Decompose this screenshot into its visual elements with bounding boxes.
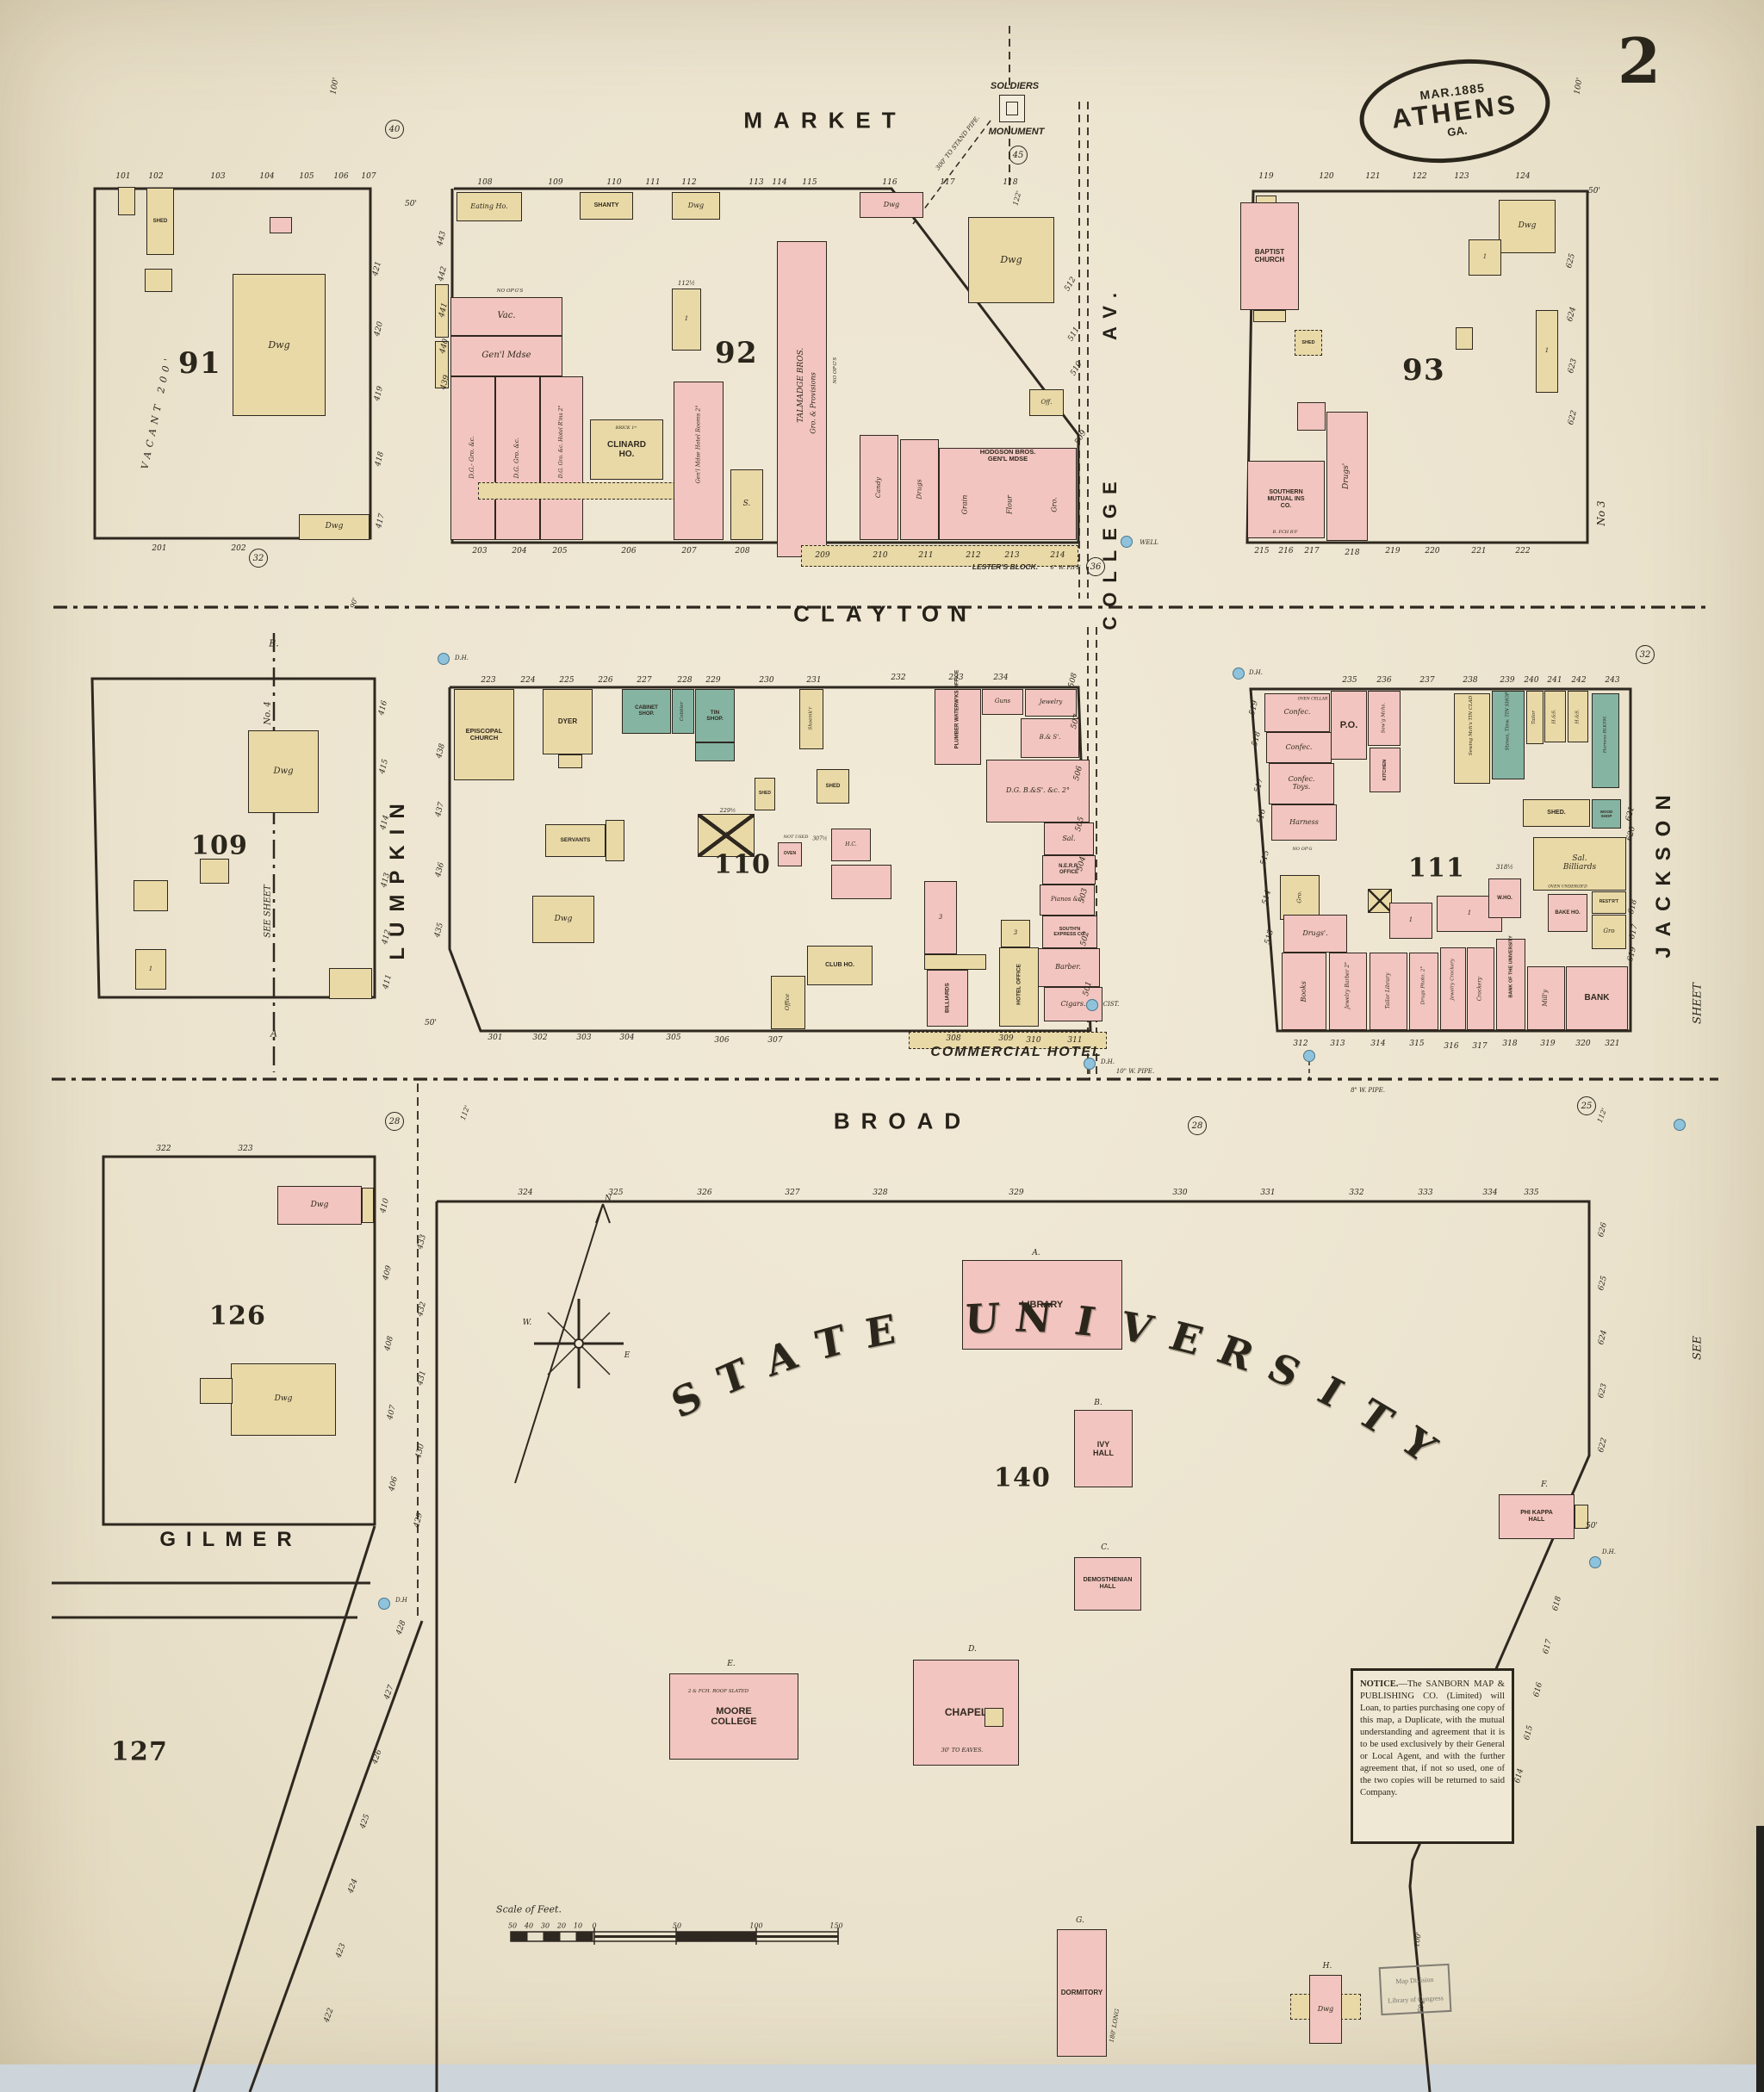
building-label: Guns [995,698,1010,705]
building-label: CABINET SHOP. [635,705,658,717]
map-annotation: H. [1323,1962,1332,1971]
building-label: Dwg [326,523,344,531]
lot-number: 241 [1547,676,1562,685]
lot-number: 217 [1304,547,1319,556]
map-annotation: 150 [829,1922,842,1930]
building-mill-y: Mill'y [1527,966,1565,1030]
lot-number: 209 [815,551,829,560]
building-h-c: H.C. [831,829,871,861]
building-cobbler: Cobbler [672,689,694,734]
building [362,1188,374,1223]
building-candy: Candy [860,435,898,540]
building-label: S. [743,500,751,509]
lot-number: 222 [1515,547,1530,556]
building-label: REST'R'T [1599,900,1618,905]
building-label: Books [1301,981,1308,1002]
map-annotation: B. FCH R'F [1273,530,1298,535]
building-sew-g-mchs: Sew'g Mchs. [1368,691,1401,746]
building-label: Sal. [1062,835,1075,843]
lot-number: 102 [148,172,163,181]
building [924,954,986,970]
lot-number: 219 [1385,547,1400,556]
map-annotation: 50 [673,1922,681,1930]
notice-title: NOTICE. [1360,1679,1398,1689]
building-label: Crockery [1478,977,1483,1001]
building-label: Dwg [555,916,573,924]
circled-number-badge: 28 [385,1112,404,1131]
building-label: DORMITORY [1061,1990,1102,1997]
building-episcopal-church: EPISCOPAL CHURCH [454,689,514,780]
lot-number: 106 [333,172,348,181]
lot-number: 116 [882,178,897,187]
street-label: COLLEGE [1099,472,1121,630]
building-label: Cigars. [1060,1001,1085,1009]
map-annotation: WELL [1140,539,1158,546]
compass-rose-icon [515,1204,624,1483]
building-label: OVEN [784,852,796,857]
map-annotation: 30' TO EAVES. [941,1747,984,1754]
map-annotation: G. [1076,1916,1084,1925]
building-label: EPISCOPAL CHURCH [466,728,503,742]
hydrant-icon [1674,1119,1686,1131]
building-dwg: Dwg [1499,200,1556,253]
lot-number: 221 [1471,547,1486,556]
building-label: 1 [1409,917,1413,924]
building-baptist-church: BAPTIST CHURCH [1240,202,1299,310]
lot-number: 243 [1605,676,1619,685]
building-h-s: H.&S. [1544,691,1566,742]
block-number: 126 [209,1301,266,1332]
map-annotation: SEE [1692,1336,1705,1360]
building-label: D.G. Gro. &c. [514,438,521,478]
building-dwg: Dwg [672,192,720,220]
building [1456,327,1473,350]
building-label: Jewelry Barber 2° [1345,974,1351,1009]
lot-number: 228 [677,676,692,685]
building-label: SHED [759,791,771,797]
building-sal: Sal. [1044,823,1094,855]
lot-number: 211 [918,551,933,560]
building-label: KITCHEN [1382,760,1388,780]
lot-number: 212 [966,551,980,560]
building-label: BILLIARDS [944,984,950,1014]
map-annotation: 10" W. PIPE. [1116,1068,1154,1075]
lot-number: 111 [645,178,660,187]
building-label: BAPTIST CHURCH [1255,249,1285,264]
building-label: SOUTHERN MUTUAL INS CO. [1267,489,1304,509]
building-club-ho: CLUB HO. [807,946,873,985]
hydrant-icon [1589,1556,1601,1568]
block-number: 127 [111,1737,168,1767]
building-label: Stoves, Tinw. TIN SHOP [1506,720,1511,750]
building-label: Drugs'. [1302,930,1327,938]
lot-number: 201 [152,544,166,553]
building-label: Drugs [916,480,922,500]
building-label: SHED [826,784,841,790]
building-label: SHED. [1547,810,1565,816]
building-label: Jewelry Crockery [1450,978,1456,1001]
building-sal-billiards: Sal. Billiards [1533,837,1626,891]
map-annotation: 2 & FCH. ROOF SLATED [688,1689,748,1694]
building-label: SERVANTS [561,837,591,843]
building [1253,310,1286,322]
building-label: Dwg [1519,222,1537,231]
lot-number: 321 [1605,1040,1619,1048]
building-dwg: Dwg [277,1186,362,1225]
map-annotation: 100 [749,1922,762,1930]
building-label: IVY HALL [1093,1440,1114,1457]
building-label: Dwg [1318,2006,1333,2014]
building-bank-of-the-university: BANK OF THE UNIVERSITY [1496,939,1525,1030]
building-dwg: Dwg [231,1363,336,1436]
building-label: BANK OF THE UNIVERSITY [1508,972,1513,998]
notice-body: The SANBORN MAP & PUBLISHING CO. (Limite… [1360,1679,1505,1797]
lot-number: 225 [559,676,574,685]
circled-number-badge: 32 [249,549,268,568]
hydrant-icon [1121,536,1133,548]
stamp-line2: Library of Congress [1388,1994,1444,2004]
lot-number: 316 [1444,1042,1458,1051]
building-label: H.&S. [1575,710,1581,724]
building-crockery: Crockery [1467,947,1494,1030]
lot-number: 329 [1009,1189,1023,1197]
building-p-o: P.O. [1331,691,1367,760]
building-label: HODGSON BROS. GEN'L MDSE [980,449,1036,463]
lot-number: 105 [299,172,314,181]
lot-number: 327 [785,1189,799,1197]
building-dwg: Dwg [1309,1975,1342,2044]
building-jewelry-crockery: Jewelry Crockery [1440,947,1466,1030]
building-n-e-r-r-office: N.E.R.R. OFFICE [1042,855,1096,885]
map-annotation: NO OP'G'S [497,289,523,294]
lot-number: 233 [948,674,963,682]
building-label: PLUMBER WATERW'KS OFFICE [955,705,961,748]
lot-number: 229 [705,676,720,685]
building-label: WOOD SHOP [1600,810,1613,818]
lot-number: 332 [1349,1189,1363,1197]
building-label: Barber. [1055,964,1081,972]
lot-number: 301 [488,1034,502,1042]
lot-number: 202 [231,544,245,553]
building-label: Dwg [311,1201,329,1210]
building-1: 1 [1389,903,1432,939]
map-annotation: A. [1032,1249,1040,1257]
map-annotation: Gro. & Provisions [810,372,817,433]
map-annotation: B. [269,638,279,649]
building-label: H.C. [845,842,856,847]
lot-number: 112 [681,178,696,187]
building-shed: SHED [817,769,849,804]
lot-number: 109 [548,178,562,187]
building-rest-r-t: REST'R'T [1592,891,1626,914]
building-h-s: H.&S. [1568,691,1588,742]
building-hodgson-bros-gen-l-mdse: HODGSON BROS. GEN'L MDSE [939,448,1077,540]
building-label: Dwg [268,340,289,351]
lot-number: 206 [621,547,636,556]
building-plumber-waterw-ks-office: PLUMBER WATERW'KS OFFICE [935,689,981,765]
building-label: Mill'y [1543,990,1550,1007]
circled-number-badge: 25 [1577,1096,1596,1115]
building-3: 3 [1001,920,1030,947]
map-annotation: Scale of Feet. [496,1904,562,1915]
building-dormitory: DORMITORY [1057,1929,1107,2057]
lot-number: 315 [1409,1040,1424,1048]
building-harness: Harness [1271,804,1337,841]
compass-letter: N [605,1195,612,1203]
building-label: SHED [1301,340,1314,345]
lot-number: 213 [1004,551,1019,560]
circled-number-badge: 40 [385,120,404,139]
lot-number: 303 [576,1034,591,1042]
building-wood-shop: WOOD SHOP [1592,799,1621,829]
lot-number: 224 [520,676,535,685]
building-label: Drugs Photo. 2° [1421,978,1426,1005]
map-annotation: BRICK 1ˢᵗ [616,425,637,431]
lot-number: 205 [552,547,567,556]
building-label: Jewelry [1040,699,1063,706]
building-label: Confec. [1284,709,1311,717]
building [558,754,582,768]
building-jewelry: Jewelry [1025,689,1077,717]
building-books: Books [1282,953,1326,1030]
building-label: W.HO. [1497,896,1512,902]
building-dwg: Dwg [248,730,319,813]
lot-number: 237 [1419,676,1434,685]
building-1: 1 [1469,239,1501,276]
lot-number: 123 [1454,172,1469,181]
building-label: MOORE COLLEGE [711,1706,756,1728]
building-label: 1 [685,316,688,323]
building-d-g-gro-c-hotel-r-ms-2: D.G. Gro. &c. Hotel R'ms 2° [540,376,583,540]
compass-letter: W. [523,1319,532,1327]
street-label: BROAD [834,1108,972,1135]
map-annotation: OVEN UNDERGR'D [1548,885,1587,890]
building-oven: OVEN [778,842,802,866]
circled-number-badge: 36 [1086,557,1105,576]
building-shoemk-r: Shoemk'r [799,689,823,749]
building [134,880,168,911]
building [1340,1994,1361,2020]
building-label: TIN SHOP. [706,710,723,723]
hydrant-icon [1303,1050,1315,1062]
building-label: CLUB HO. [825,962,854,969]
campus-arc-title-letter: N [1012,1294,1054,1342]
building-label: Dwg [688,202,704,210]
lot-number: 319 [1540,1040,1555,1048]
building-label: Harness [1289,819,1319,827]
building-label: Confec. [1286,744,1313,752]
building-dwg: Dwg [532,896,594,943]
building-label: Gen'l Mdse Hotel Rooms 2° [695,438,701,484]
lot-number: 231 [806,676,821,685]
map-annotation: COMMERCIAL HOTEL [930,1045,1102,1060]
map-annotation: D. [968,1645,977,1654]
lot-number: 313 [1330,1040,1345,1048]
lot-number: 309 [998,1034,1013,1043]
sheet-number: 2 [1618,24,1661,97]
building-tailor-library: Tailor Library [1370,953,1407,1030]
lot-number: 242 [1571,676,1586,685]
building [200,1378,233,1404]
lot-number: 238 [1463,676,1477,685]
lot-number: 310 [1026,1036,1040,1045]
lot-number: 308 [946,1034,960,1043]
building-label: Dwg [274,767,294,777]
lot-number: 207 [681,547,696,556]
map-annotation: 6" W. PIPE [1051,564,1081,571]
building-label: HOTEL OFFICE [1016,969,1022,1005]
building-label: 1 [1483,254,1487,261]
building-dwg: Dwg [299,514,370,540]
map-annotation: 10 [574,1922,582,1930]
building-label: Candy [875,477,882,498]
lot-number: 218 [1345,549,1359,557]
map-annotation: D.H [395,1597,407,1604]
lot-number: 121 [1365,172,1380,181]
building-bake-ho: BAKE HO. [1548,894,1587,932]
block-number: 109 [191,831,248,861]
building [831,865,891,899]
building-d-g-gro-c: D.G. Gro. &c. [495,376,540,540]
lot-number: 239 [1500,676,1514,685]
building-demosthenian-hall: DEMOSTHENIAN HALL [1074,1557,1141,1611]
building-drugs: Drugs'. [1283,915,1347,953]
map-annotation: 0 [592,1922,596,1930]
campus-arc-title-letter: E [863,1305,897,1357]
building [999,95,1025,122]
lot-number: 215 [1254,547,1269,556]
lot-number: 323 [238,1145,252,1153]
building-label: DEMOSTHENIAN HALL [1084,1577,1133,1591]
building-label: BAKE HO. [1555,910,1580,916]
building-label: Tailor [1532,711,1537,724]
building-shed: SHED. [1523,799,1590,827]
building-label: Gen'l Mdse [481,351,531,361]
building [695,742,735,761]
building-phi-kappa-hall: PHI KAPPA HALL [1499,1494,1575,1539]
lot-number: 234 [993,674,1008,682]
lot-number: 317 [1472,1042,1487,1051]
building-w-ho: W.HO. [1488,878,1521,918]
publisher-notice: NOTICE.—The SANBORN MAP & PUBLISHING CO.… [1351,1668,1514,1844]
building-label: Shoemk'r [809,709,814,730]
lot-number: 236 [1376,676,1391,685]
building-label: PHI KAPPA HALL [1520,1510,1553,1524]
lot-number: 103 [210,172,225,181]
map-annotation: 8" W. PIPE. [1351,1087,1385,1094]
building-label: Office [785,994,791,1011]
building-label: D.G. Gro. &c. Hotel R'ms 2° [559,438,564,478]
lot-number: 113 [748,178,763,187]
map-annotation: 318½ [1496,864,1513,871]
building-label: H.&S. [1553,710,1558,724]
building-billiards: BILLIARDS [927,970,968,1027]
lot-number: 318 [1502,1040,1517,1048]
map-annotation: B. [1094,1399,1102,1407]
building-office: Office [771,976,805,1029]
building-label: Tailor Library [1386,974,1391,1009]
hydrant-icon [1084,1058,1096,1070]
building [1297,402,1326,431]
circled-number-badge: 28 [1188,1116,1207,1135]
building-talmadge-bros: TALMADGE BROS. [777,241,827,557]
building-harness-blksm: Harness BLKSM. [1592,693,1619,788]
building-label: 1 [1468,910,1471,917]
building-drugs: Drugs [900,439,939,540]
block-number: 111 [1408,854,1465,884]
building-vac: Vac. [450,297,562,336]
map-annotation: Gro. [1051,497,1059,512]
map-annotation: 307½ [812,836,827,842]
hydrant-icon [1233,667,1245,680]
map-annotation: 50 [508,1922,517,1930]
building-s: S. [730,469,763,540]
building [606,820,624,861]
lot-number: 307 [767,1036,782,1045]
map-annotation: NO OP'G'S [833,357,838,383]
lot-number: 124 [1515,172,1530,181]
lot-number: 333 [1418,1189,1432,1197]
lot-number: 230 [759,676,773,685]
building [329,968,372,999]
building-tin-shop: TIN SHOP. [695,689,735,742]
map-annotation: Grain [961,495,969,515]
building-gen-l-mdse: Gen'l Mdse [450,336,562,376]
building-kitchen: KITCHEN [1370,748,1401,792]
lot-number: 119 [1258,172,1273,181]
lot-number: 118 [1003,178,1017,187]
lot-number: 235 [1342,676,1357,685]
building-shed: SHED [146,188,174,255]
building-label: Confec. Toys. [1289,776,1315,791]
building-label: TALMADGE BROS. [798,376,806,423]
building-label: 3 [1014,930,1017,937]
building [1368,889,1392,913]
building-label: P.O. [1340,720,1358,730]
building-label: SHED [153,219,168,225]
lot-number: 216 [1278,547,1293,556]
map-annotation: F. [1541,1481,1548,1489]
map-annotation: NO OP'G [1293,847,1313,852]
street-label: MARKET [743,108,906,134]
map-annotation: E. [727,1660,735,1668]
building-label: CLINARD HO. [607,440,646,459]
street-label: JACKSON [1652,785,1676,958]
building-gro: Gro. [1280,875,1320,920]
map-annotation: 50' [1588,187,1600,196]
lot-number: 330 [1172,1189,1187,1197]
building-label: Dwg [1000,255,1022,265]
building [118,187,135,215]
map-annotation: D.H. [455,655,469,661]
building-label: D.G.- Gro. &c. [469,438,476,479]
map-annotation: C. [1101,1543,1109,1552]
lot-number: 203 [472,547,487,556]
lot-number: 204 [512,547,526,556]
building-shanty: SHANTY [580,192,633,220]
lot-number: 115 [802,178,817,187]
lot-number: 314 [1370,1040,1385,1048]
lot-number: 210 [873,551,887,560]
building-label: Drugs' [1343,463,1351,489]
street-label: CLAYTON [793,601,978,628]
building-label: 1 [149,966,152,973]
building-confec-toys: Confec. Toys. [1269,763,1334,804]
street-label: AV. [1099,283,1121,340]
building-label: Eating Ho. [470,203,507,211]
map-state: GA. [1446,123,1468,139]
circled-number-badge: 32 [1636,645,1655,664]
